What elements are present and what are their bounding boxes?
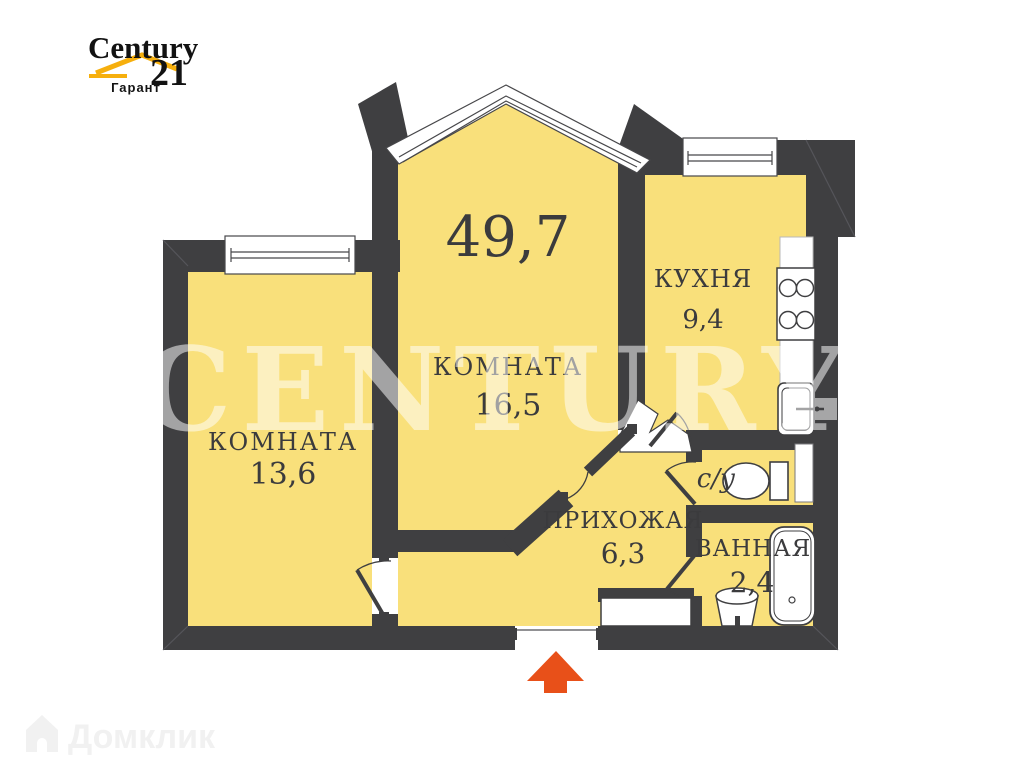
- wall-wc-bath-divider: [686, 505, 813, 523]
- kitchen-label: КУХНЯ: [654, 265, 752, 293]
- entrance-jamb-left: [512, 628, 517, 640]
- domclick-watermark: Домклик: [26, 715, 216, 756]
- total-area-label: 49,7: [446, 205, 571, 270]
- bathroom-area: 2,4: [730, 566, 775, 599]
- wall-top-left-a: [163, 240, 225, 272]
- domclick-label: Домклик: [68, 718, 216, 756]
- entrance-arrow-icon: [527, 651, 584, 693]
- window-kitchen-icon: [683, 138, 777, 176]
- hallway-area: 6,3: [601, 537, 646, 570]
- window-room-left-icon: [225, 236, 355, 274]
- entrance-jamb-right: [596, 628, 601, 640]
- wall-middle-bottom: [398, 530, 516, 552]
- floorplan-svg: 49,7 КОМНАТА 16,5 КОМНАТА 13,6 КУХНЯ 9,4…: [0, 0, 1024, 768]
- room-left-area: 13,6: [250, 457, 317, 492]
- domclick-house-icon: [26, 715, 58, 752]
- century21-logo: Century 21 Гарант: [88, 30, 199, 95]
- century21-watermark: CENTURY 21: [140, 323, 1024, 458]
- wc-label: с/у: [697, 464, 735, 494]
- wall-bottom-left: [163, 626, 515, 650]
- logo-subtitle-text: Гарант: [111, 80, 161, 95]
- bathroom-label: ВАННАЯ: [695, 536, 811, 562]
- niche: [601, 598, 691, 626]
- hallway-label: ПРИХОЖАЯ: [543, 508, 704, 534]
- entrance: [512, 626, 601, 693]
- wall-bottom-right: [598, 626, 838, 650]
- floorplan-image: 49,7 КОМНАТА 16,5 КОМНАТА 13,6 КУХНЯ 9,4…: [0, 0, 1024, 768]
- wall-kitchen-top-b: [775, 140, 813, 175]
